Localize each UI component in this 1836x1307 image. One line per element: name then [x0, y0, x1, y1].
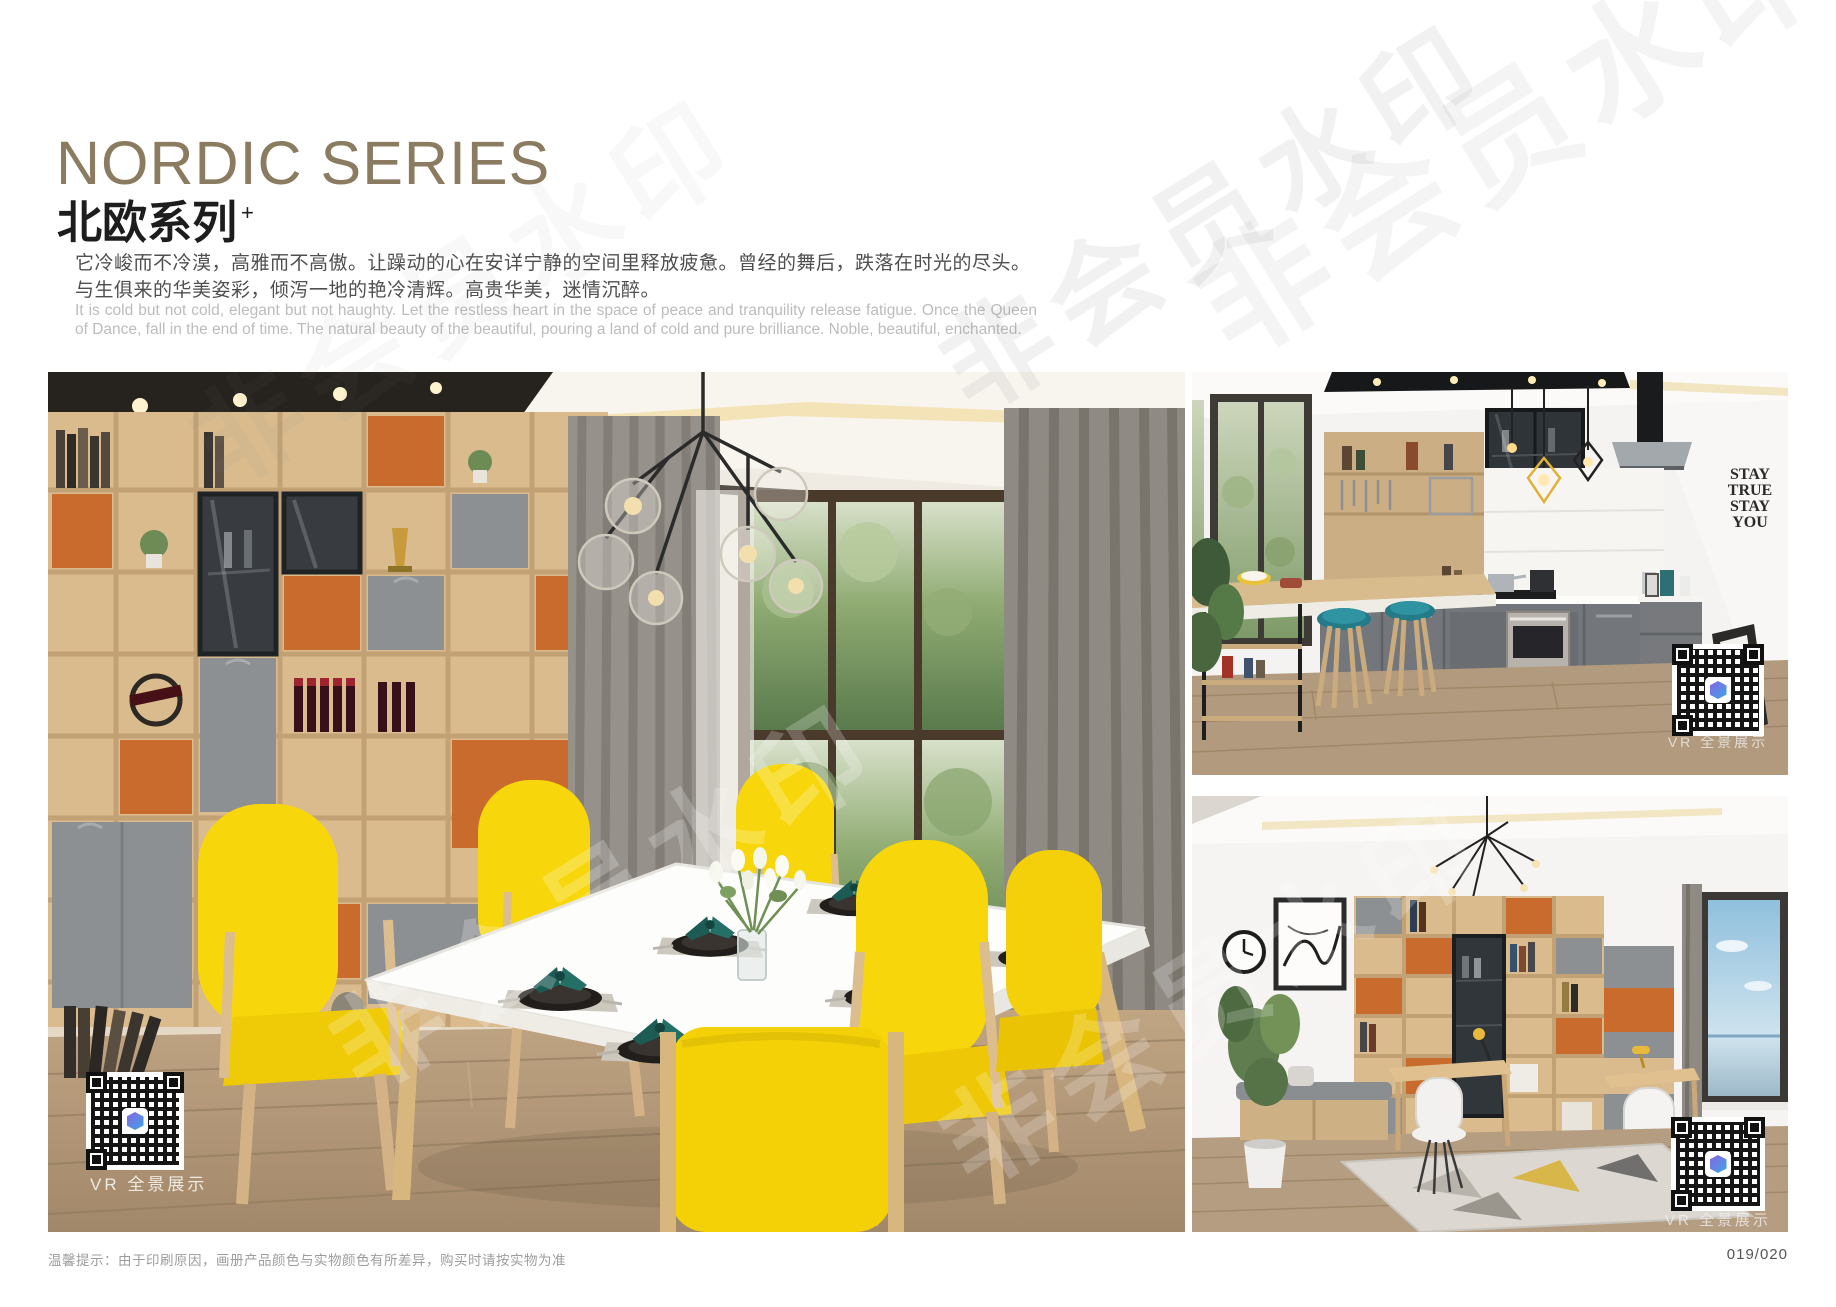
vr-cube-logo-icon	[122, 1108, 148, 1134]
vr-panorama-label: VR 全景展示	[90, 1170, 207, 1195]
study-bookshelf	[1354, 896, 1604, 1136]
page-number: 019/020	[1727, 1246, 1788, 1263]
vr-cube-logo-icon	[1705, 1151, 1731, 1177]
qr-code	[1671, 1117, 1765, 1211]
photo-study-room: VR 全景展示	[1192, 796, 1788, 1232]
description-english: It is cold but not cold, elegant but not…	[75, 301, 1037, 341]
series-title-zh: 北欧系列+	[57, 200, 254, 245]
qr-code	[86, 1072, 184, 1170]
footer-print-disclaimer: 温馨提示：由于印刷原因，画册产品颜色与实物颜色有所差异，购买时请按实物为准	[48, 1249, 566, 1269]
wall-decal-stay-true: STAY TRUE STAY YOU	[1728, 466, 1772, 531]
series-title-en: NORDIC SERIES	[56, 133, 550, 194]
study-window	[1682, 884, 1788, 1126]
photo-kitchen: STAY TRUE STAY YOU	[1192, 372, 1788, 775]
wall-clock	[1224, 932, 1264, 972]
svg-text:TRUE: TRUE	[1728, 482, 1772, 499]
vr-cube-logo-icon	[1705, 677, 1731, 703]
dining-room-illustration	[48, 372, 1185, 1232]
vr-panorama-label: VR 全景展示	[1654, 732, 1782, 752]
svg-text:YOU: YOU	[1732, 514, 1768, 531]
svg-text:STAY: STAY	[1730, 498, 1770, 515]
watermark-text: 非会员水印	[1155, 0, 1836, 392]
abstract-art-frame	[1276, 900, 1344, 988]
qr-code	[1672, 644, 1764, 736]
vr-panorama-label: VR 全景展示	[1652, 1209, 1784, 1230]
svg-text:STAY: STAY	[1730, 466, 1770, 483]
photo-dining-room: VR 全景展示	[48, 372, 1185, 1232]
wine-bottles	[294, 678, 415, 732]
title-plus-superscript: +	[241, 200, 254, 225]
description-chinese: 它冷峻而不冷漠，高雅而不高傲。让躁动的心在安详宁静的空间里释放疲惫。曾经的舞后，…	[75, 250, 1031, 304]
